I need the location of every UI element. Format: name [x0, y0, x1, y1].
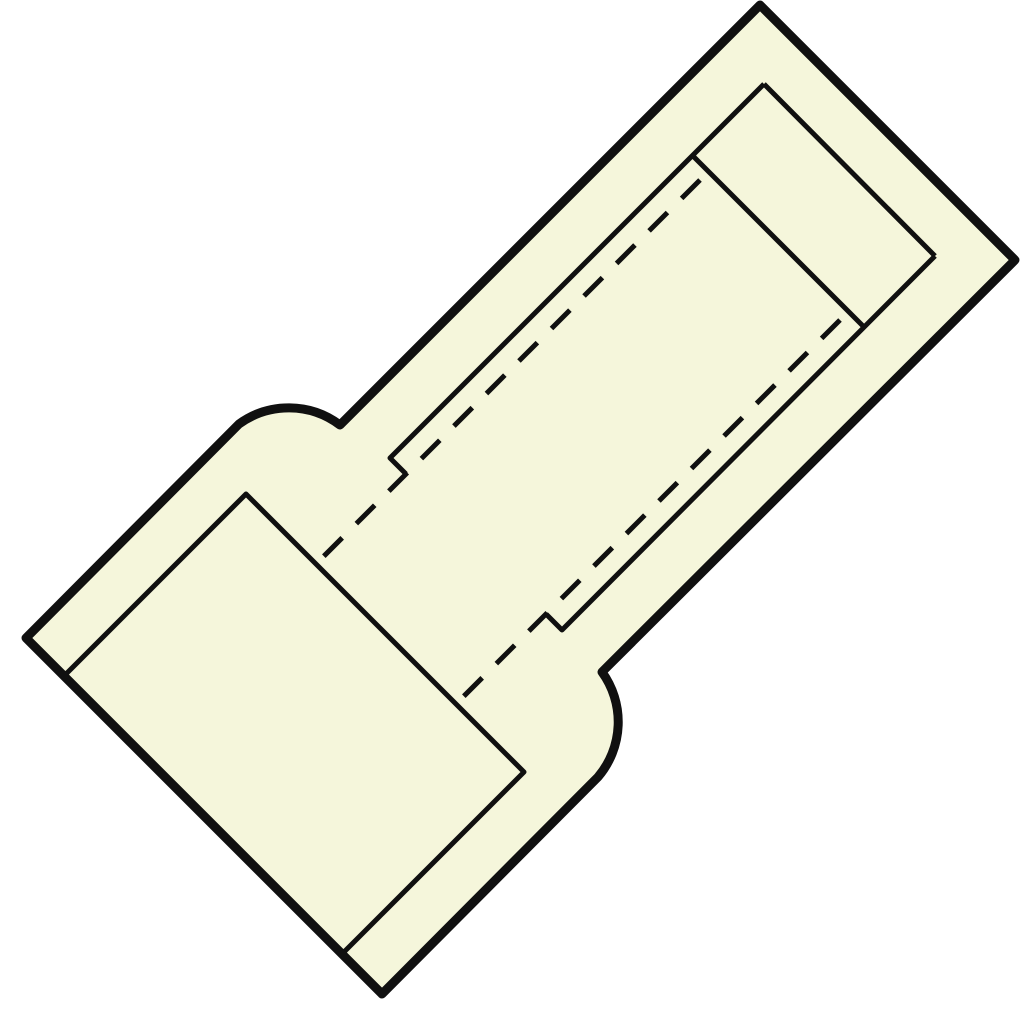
connector-body-outline — [26, 5, 1015, 994]
connector-diagram — [0, 0, 1024, 1024]
connector-drawing-svg — [0, 0, 1024, 1024]
